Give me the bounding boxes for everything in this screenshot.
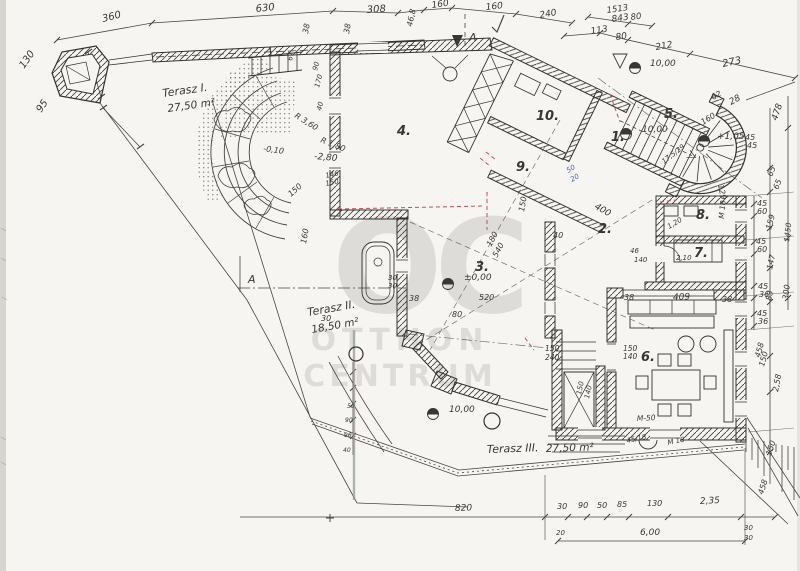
dimension-label: 820 [455,503,473,514]
dimension-label: -2,80 [314,152,338,164]
dimension-label: 2,10 [676,254,692,262]
dimension-label: 36 [758,317,768,326]
dimension-label: M 18 [717,200,728,219]
dimension-label: 30 [388,282,397,290]
dimension-label: 60 [757,207,767,216]
dimension-label: 140 [634,256,648,264]
room-number: 4. [396,124,411,139]
dimension-label: 30 [557,502,567,511]
dimension-label: 38 [342,23,353,35]
dimension-label: 30 [744,534,753,542]
level-value: ±0,00 [464,273,492,283]
dimension-label: 130 [647,499,662,508]
dimension-label: 40 [343,447,351,454]
dimension-label: 160 [485,1,503,13]
dimension-label: 630 [255,2,275,15]
dimension-label: 46 [630,247,639,255]
terrace-area: 27,50 m² [546,441,595,455]
dimension-label: 20 [556,529,565,537]
room-number: 7. [694,246,708,261]
dimension-label: 90 [578,501,588,510]
dimension-label: 90 [345,417,353,424]
room-number: 8. [696,208,710,223]
room-number: 6. [641,350,655,365]
dimension-label: 38 [409,294,419,303]
level-value: 10,00 [650,59,676,69]
dimension-label: 409 [673,292,691,303]
dimension-label: 300 [781,284,792,300]
dimension-label: 80 [452,310,462,319]
dimension-label: 240 [545,353,560,362]
dimension-label: M-50 [637,413,656,423]
room-number: 2. [598,222,612,237]
dimension-label: 80 [615,31,628,43]
level-value: 10,00 [642,125,668,135]
dimension-label: 30 [388,274,397,282]
dimension-label: 60 [757,245,767,254]
terrace-label: Terasz III. [487,441,539,456]
dimension-label: 6,00 [640,528,660,538]
dimension-label: 40 [553,231,563,240]
floor-plan-drawing: OC OTTHON CENTRUM [0,0,800,571]
room-number: 10. [536,109,559,124]
dimension-label: 85 [617,500,627,509]
dimension-label: A [468,31,477,44]
dimension-label: 38 [624,293,634,302]
dimension-label: 308 [366,4,386,16]
dimension-label: 45 [747,141,757,150]
level-value: 10,00 [449,405,475,415]
dimension-label: A [247,273,256,286]
room-number: 5. [664,107,678,122]
dimension-label: 38 [722,295,732,304]
dimension-label: 38 [301,23,312,35]
dimension-label: 520 [479,293,494,302]
dimension-label: 140 [623,352,638,361]
scanned-floor-plan-page: OC OTTHON CENTRUM [0,0,800,571]
dimension-label: 90 [344,432,352,439]
dimension-label: 30 [744,524,753,532]
dimension-label: 2,35 [700,496,721,507]
room-number: 9. [516,160,530,175]
level-value: +1,05 [717,132,745,142]
dimension-label: 150 [545,344,560,353]
dimension-label: 50 [347,403,355,410]
dimension-label: 50 [597,501,607,510]
dimension-label: 80 [630,12,642,23]
